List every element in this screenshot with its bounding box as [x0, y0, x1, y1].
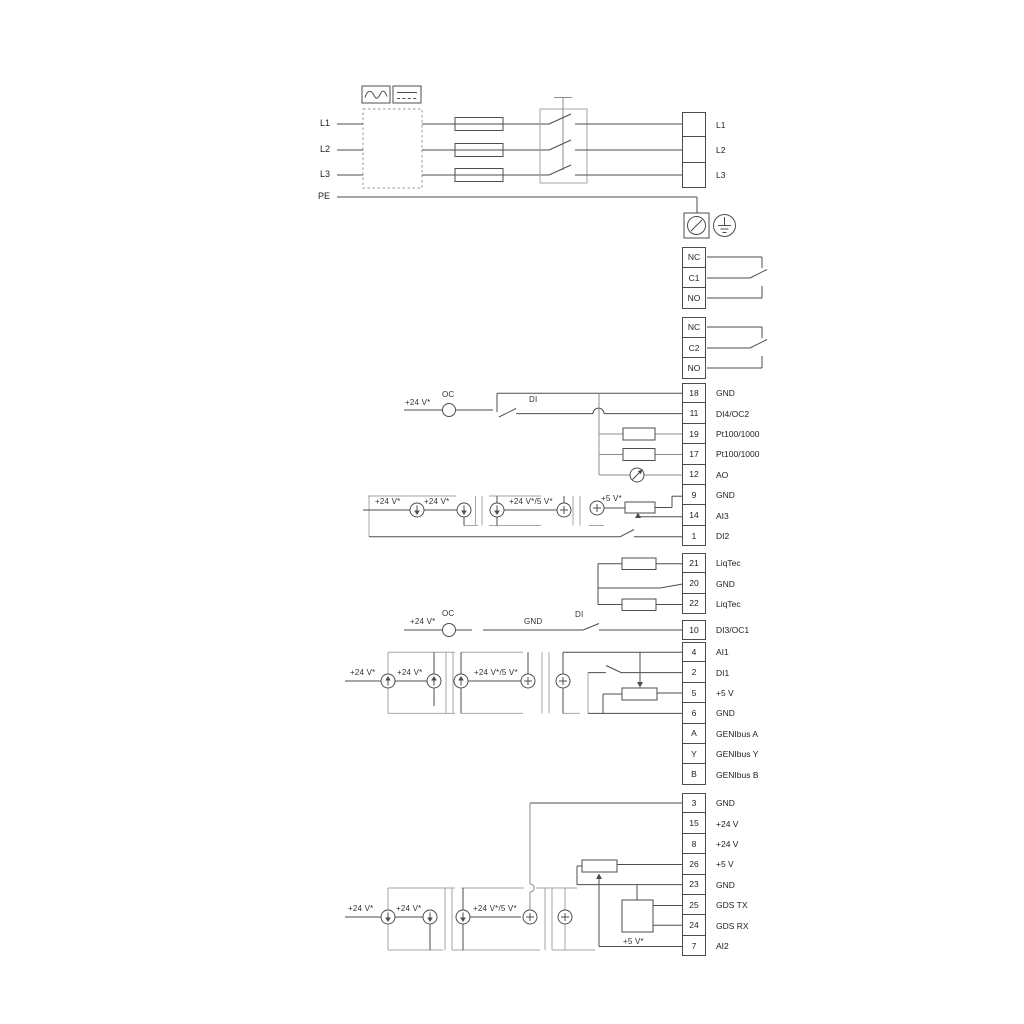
- v5-label: +5 V*: [601, 494, 622, 503]
- wiring-diagram-page: L1 L2 L3 PE +24 V* OC DI +24 V* +24 V* +…: [0, 0, 1024, 1024]
- terminal-cell: 22: [682, 594, 706, 614]
- ai3-potentiometer: [625, 502, 655, 513]
- io3-wiring: [345, 803, 682, 950]
- terminal-row: 23GND: [682, 875, 812, 895]
- terminal-row: 7AI2: [682, 936, 812, 956]
- current-source-icon: [423, 910, 437, 950]
- open-collector-icon: [443, 624, 456, 637]
- terminal-label: DI2: [706, 526, 729, 546]
- di1-switch: [606, 666, 622, 674]
- terminal-cell: 12: [682, 465, 706, 485]
- terminal-label: L3: [706, 163, 725, 188]
- voltage-source-icon: [556, 674, 570, 688]
- terminal-block-liqtec: 21LiqTec 20GND 22LiqTec: [682, 553, 812, 614]
- terminal-label: LiqTec: [706, 594, 741, 614]
- terminal-cell: 6: [682, 703, 706, 723]
- terminal-cell: NC: [682, 317, 706, 338]
- v24-label: +24 V*: [375, 497, 400, 506]
- wiper-arrow-icon: [637, 682, 643, 688]
- disconnect-switch: [540, 98, 587, 184]
- terminal-label: GND: [706, 485, 735, 505]
- terminal-row: 2DI1: [682, 662, 812, 682]
- terminal-row: YGENIbus Y: [682, 744, 812, 764]
- terminal-cell: [682, 163, 706, 188]
- current-source-icon: [457, 503, 471, 517]
- current-source-icon: [427, 652, 441, 706]
- voltage-source-icon: [557, 496, 571, 517]
- terminal-label: GDS TX: [706, 895, 748, 915]
- terminal-cell: 7: [682, 936, 706, 956]
- oc-label: OC: [442, 390, 454, 399]
- terminal-cell: 8: [682, 834, 706, 854]
- terminal-row: C1: [682, 268, 706, 289]
- terminal-cell: B: [682, 764, 706, 784]
- di4-switch: [499, 409, 516, 418]
- wiring-diagram: [0, 0, 1024, 1024]
- terminal-row: 17Pt100/1000: [682, 444, 812, 464]
- terminal-label: Pt100/1000: [706, 424, 759, 444]
- open-collector-icon: [443, 404, 456, 417]
- terminal-label: +24 V: [706, 813, 738, 833]
- terminal-row: 25GDS TX: [682, 895, 812, 915]
- terminal-row: 3GND: [682, 793, 812, 813]
- terminal-cell: 17: [682, 444, 706, 464]
- terminal-label: DI1: [706, 662, 729, 682]
- terminal-row: 15+24 V: [682, 813, 812, 833]
- v24-label: +24 V*: [424, 497, 449, 506]
- terminal-block-relay1: NC C1 NO: [682, 247, 706, 309]
- terminal-row: NC: [682, 317, 706, 338]
- terminal-block-io3: 3GND 15+24 V 8+24 V 26+5 V 23GND 25GDS T…: [682, 793, 812, 956]
- terminal-label: GND: [706, 573, 735, 593]
- mains-section: [337, 86, 736, 238]
- terminal-row: 26+5 V: [682, 854, 812, 874]
- dc-icon: [393, 86, 421, 103]
- ac-wave-icon: [365, 91, 387, 98]
- terminal-block-di3: 10DI3/OC1: [682, 620, 812, 640]
- di3-wiring: [404, 624, 682, 637]
- gds-module: [622, 900, 653, 932]
- terminal-label: Pt100/1000: [706, 444, 759, 464]
- terminal-label: +24 V: [706, 834, 738, 854]
- terminal-row: 11DI4/OC2: [682, 403, 812, 423]
- current-source-icon: [381, 910, 395, 924]
- pt100-resistor: [623, 449, 655, 461]
- earth-ground-icon: [714, 215, 736, 237]
- gnd-label: GND: [524, 617, 542, 626]
- mains-l2-label: L2: [320, 144, 330, 154]
- terminal-row: 21LiqTec: [682, 553, 812, 573]
- terminal-label: GENIbus B: [706, 764, 759, 784]
- terminal-cell: 23: [682, 875, 706, 895]
- terminal-row: 8+24 V: [682, 834, 812, 854]
- v5-label: +5 V*: [623, 937, 644, 946]
- terminal-block-mains: L1 L2 L3: [682, 112, 802, 188]
- terminal-row: 14AI3: [682, 505, 812, 525]
- terminal-cell: 25: [682, 895, 706, 915]
- terminal-cell: 20: [682, 573, 706, 593]
- current-source-icon: [410, 503, 424, 517]
- terminal-cell: 3: [682, 793, 706, 813]
- terminal-label: AI3: [706, 505, 729, 525]
- terminal-cell: [682, 137, 706, 162]
- terminal-cell: 21: [682, 553, 706, 573]
- v24-label: +24 V*: [397, 668, 422, 677]
- liqtec-sensor: [622, 599, 656, 611]
- terminal-cell: 1: [682, 526, 706, 546]
- terminal-block-relay2: NC C2 NO: [682, 317, 706, 379]
- terminal-row: NO: [682, 288, 706, 309]
- converter-box: [363, 109, 422, 188]
- terminal-label: GND: [706, 383, 735, 403]
- ai1-potentiometer: [622, 688, 657, 700]
- v24-5v-label: +24 V*/5 V*: [509, 497, 553, 506]
- wire-hop: [530, 884, 534, 892]
- di2-switch: [620, 530, 634, 537]
- terminal-label: AO: [706, 465, 728, 485]
- terminal-label: GND: [706, 875, 735, 895]
- liqtec-sensor: [622, 558, 656, 570]
- mains-pe-label: PE: [318, 191, 330, 201]
- pe-screw-terminal-icon: [684, 213, 709, 238]
- v24-label: +24 V*: [405, 398, 430, 407]
- terminal-row: C2: [682, 338, 706, 359]
- terminal-block-io1: 18GND 11DI4/OC2 19Pt100/1000 17Pt100/100…: [682, 383, 812, 546]
- terminal-row: L1: [682, 112, 802, 137]
- terminal-row: 10DI3/OC1: [682, 620, 812, 640]
- mains-l1-label: L1: [320, 118, 330, 128]
- v24-label: +24 V*: [348, 904, 373, 913]
- terminal-label: GDS RX: [706, 915, 749, 935]
- terminal-cell: 4: [682, 642, 706, 662]
- terminal-cell: 10: [682, 620, 706, 640]
- io1-wiring: [363, 393, 682, 537]
- terminal-row: L2: [682, 137, 802, 162]
- analog-output-icon: [630, 468, 644, 482]
- v24-label: +24 V*: [410, 617, 435, 626]
- oc-label: OC: [442, 609, 454, 618]
- terminal-row: 24GDS RX: [682, 915, 812, 935]
- terminal-row: 9GND: [682, 485, 812, 505]
- v24-label: +24 V*: [350, 668, 375, 677]
- terminal-row: NC: [682, 247, 706, 268]
- terminal-cell: 26: [682, 854, 706, 874]
- terminal-cell: NC: [682, 247, 706, 268]
- terminal-label: GENIbus Y: [706, 744, 758, 764]
- terminal-label: +5 V: [706, 854, 734, 874]
- terminal-cell: 18: [682, 383, 706, 403]
- relay1-wiring: [707, 257, 767, 298]
- terminal-block-io2: 4AI1 2DI1 5+5 V 6GND AGENIbus A YGENIbus…: [682, 642, 812, 785]
- terminal-cell: C2: [682, 338, 706, 359]
- terminal-label: L2: [706, 137, 725, 162]
- current-source-icon: [490, 496, 504, 526]
- terminal-row: NO: [682, 358, 706, 379]
- current-source-icon: [454, 652, 468, 713]
- terminal-cell: 24: [682, 915, 706, 935]
- terminal-label: DI4/OC2: [706, 403, 749, 423]
- terminal-label: DI3/OC1: [706, 620, 749, 640]
- terminal-cell: NO: [682, 358, 706, 379]
- terminal-cell: 5: [682, 683, 706, 703]
- terminal-label: GND: [706, 703, 735, 723]
- voltage-source-icon: [521, 652, 535, 688]
- voltage-source-icon: [558, 910, 572, 924]
- terminal-row: 12AO: [682, 465, 812, 485]
- di-label: DI: [575, 610, 583, 619]
- terminal-row: 4AI1: [682, 642, 812, 662]
- terminal-label: GND: [706, 793, 735, 813]
- terminal-label: GENIbus A: [706, 724, 758, 744]
- terminal-row: 1DI2: [682, 526, 812, 546]
- current-source-icon: [381, 674, 395, 688]
- current-source-icon: [456, 888, 470, 950]
- ai3-option-brackets: [368, 496, 604, 537]
- terminal-label: LiqTec: [706, 553, 741, 573]
- v24-5v-label: +24 V*/5 V*: [474, 668, 518, 677]
- io2-wiring: [345, 652, 682, 713]
- terminal-row: BGENIbus B: [682, 764, 812, 784]
- voltage-source-icon: [523, 910, 537, 924]
- relay2-wiring: [707, 327, 767, 368]
- di3-switch: [583, 624, 599, 631]
- terminal-cell: NO: [682, 288, 706, 309]
- terminal-label: +5 V: [706, 683, 734, 703]
- terminal-row: AGENIbus A: [682, 724, 812, 744]
- terminal-row: 18GND: [682, 383, 812, 403]
- mains-l3-label: L3: [320, 169, 330, 179]
- ai2-potentiometer: [582, 860, 617, 872]
- terminal-cell: 11: [682, 403, 706, 423]
- pt100-resistor: [623, 428, 655, 440]
- terminal-row: 22LiqTec: [682, 594, 812, 614]
- terminal-cell: 15: [682, 813, 706, 833]
- terminal-label: AI2: [706, 936, 729, 956]
- terminal-label: L1: [706, 112, 725, 137]
- terminal-cell: Y: [682, 744, 706, 764]
- di-label: DI: [529, 395, 537, 404]
- terminal-cell: C1: [682, 268, 706, 289]
- terminal-row: 20GND: [682, 573, 812, 593]
- terminal-cell: 14: [682, 505, 706, 525]
- liqtec-wiring: [598, 558, 682, 611]
- voltage-source-icon: [590, 501, 604, 515]
- terminal-row: L3: [682, 163, 802, 188]
- terminal-cell: 19: [682, 424, 706, 444]
- terminal-row: 6GND: [682, 703, 812, 723]
- v24-label: +24 V*: [396, 904, 421, 913]
- terminal-cell: [682, 112, 706, 137]
- terminal-row: 19Pt100/1000: [682, 424, 812, 444]
- terminal-cell: A: [682, 724, 706, 744]
- terminal-cell: 2: [682, 662, 706, 682]
- v24-5v-label: +24 V*/5 V*: [473, 904, 517, 913]
- terminal-row: 5+5 V: [682, 683, 812, 703]
- terminal-cell: 9: [682, 485, 706, 505]
- terminal-label: AI1: [706, 642, 729, 662]
